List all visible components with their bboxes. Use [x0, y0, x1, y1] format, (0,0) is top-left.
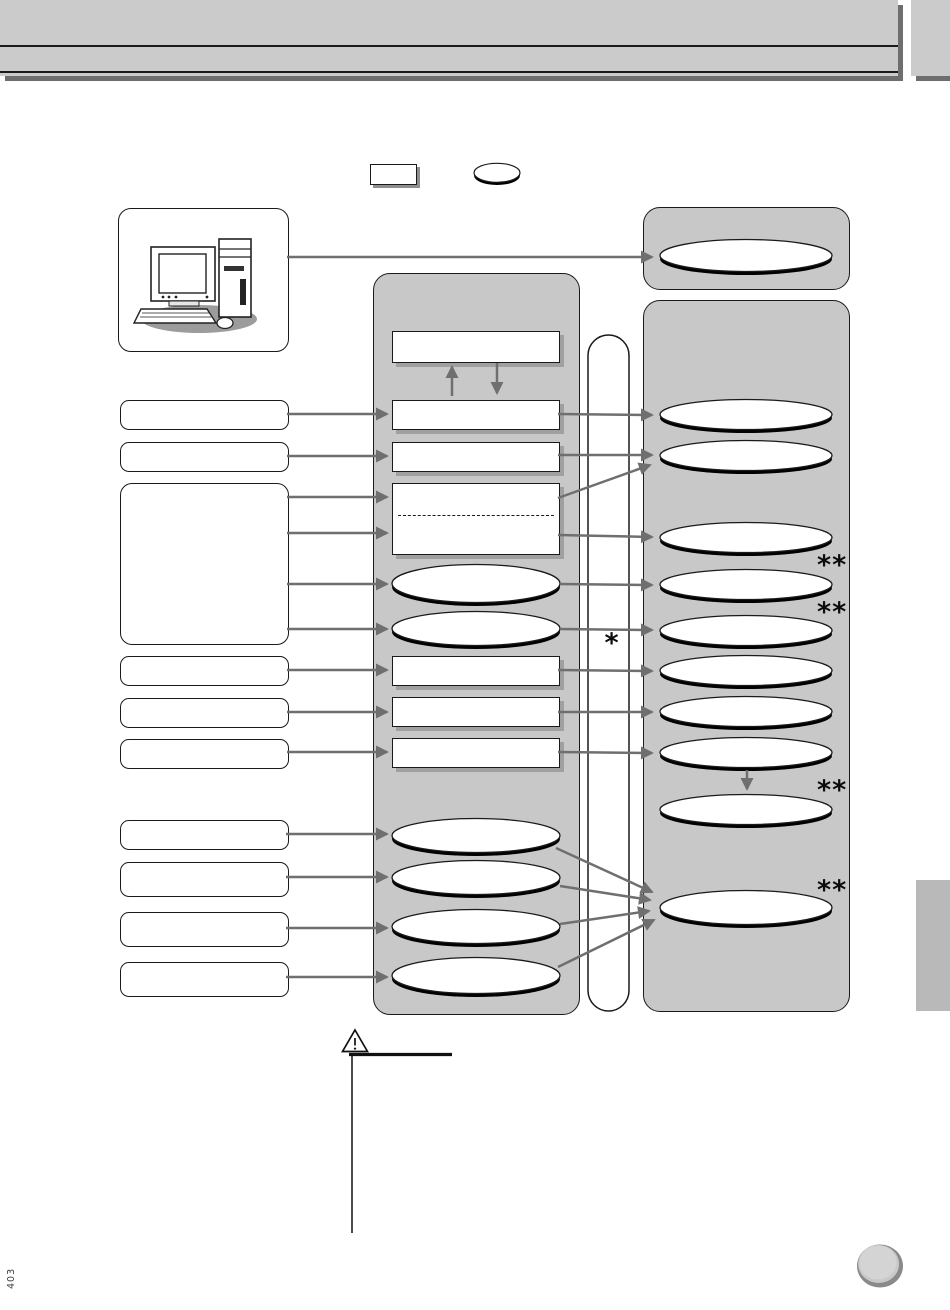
- header-rule-top: [0, 45, 898, 47]
- process-box-split: [392, 483, 560, 555]
- asterisk-note-double-4: **: [817, 881, 847, 901]
- output-panel-top: [643, 207, 850, 290]
- input-box-4: [120, 698, 289, 728]
- legend-ellipse-symbol: [474, 163, 520, 185]
- page-number: 403: [6, 1268, 17, 1289]
- process-box-5: [392, 738, 560, 768]
- input-box-3: [120, 656, 289, 686]
- desktop-computer-icon: [119, 209, 285, 347]
- asterisk-note-double-1: **: [817, 556, 847, 576]
- input-box-1: [120, 400, 289, 430]
- page-edge-tab: [916, 880, 950, 1011]
- input-box-5: [120, 739, 289, 769]
- process-box-3: [392, 656, 560, 686]
- computer-box: [118, 208, 289, 352]
- input-box-2: [120, 442, 289, 472]
- manual-page: * ** ** ** ** 403: [0, 0, 950, 1310]
- bus-capsule: [588, 335, 629, 1011]
- process-box-2: [392, 442, 560, 472]
- header-corner-tab: [911, 0, 950, 76]
- source-box-4: [120, 962, 289, 997]
- asterisk-note-double-2: **: [817, 603, 847, 623]
- caution-section: [343, 1030, 453, 1233]
- process-panel: [373, 273, 580, 1015]
- source-box-2: [120, 862, 289, 897]
- page-header-bar: [0, 0, 898, 76]
- dashed-divider: [398, 515, 554, 516]
- page-nav-button[interactable]: [857, 1245, 903, 1288]
- legend-box-symbol: [370, 164, 417, 185]
- process-box-1: [392, 400, 560, 430]
- header-rule-bottom: [0, 71, 898, 73]
- process-box-4: [392, 697, 560, 727]
- warning-triangle-icon: [343, 1030, 368, 1052]
- source-box-3: [120, 912, 289, 947]
- process-box-top: [392, 331, 560, 363]
- asterisk-note-single: *: [600, 634, 624, 654]
- source-box-1: [120, 820, 289, 850]
- asterisk-note-double-3: **: [817, 781, 847, 801]
- input-box-large: [120, 483, 289, 645]
